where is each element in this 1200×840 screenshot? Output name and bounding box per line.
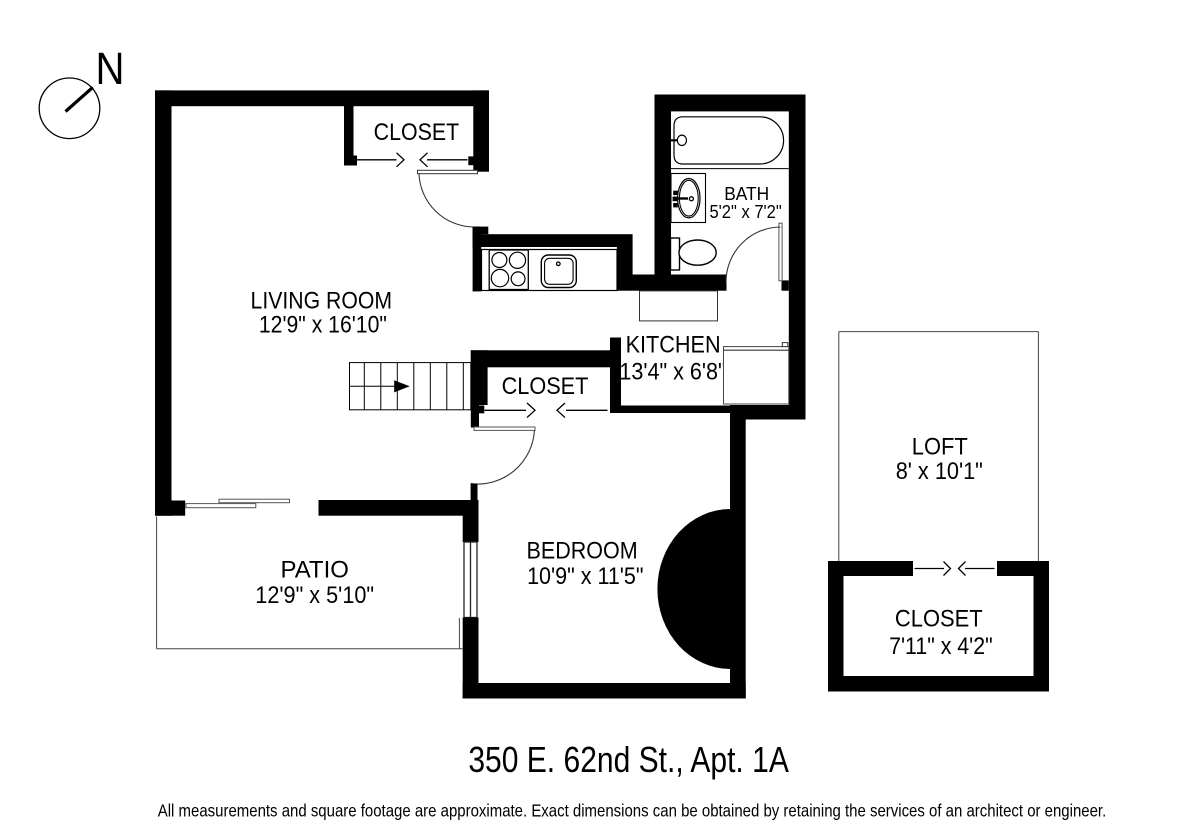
svg-text:12'9" x 5'10": 12'9" x 5'10" (255, 582, 374, 609)
svg-text:BEDROOM: BEDROOM (527, 537, 638, 564)
svg-text:350 E. 62nd St., Apt. 1A: 350 E. 62nd St., Apt. 1A (468, 739, 789, 780)
svg-text:10'9" x 11'5": 10'9" x 11'5" (527, 563, 643, 590)
svg-text:BATH: BATH (724, 184, 769, 204)
svg-text:13'4" x 6'8": 13'4" x 6'8" (619, 359, 725, 386)
svg-text:CLOSET: CLOSET (895, 606, 983, 633)
svg-text:N: N (96, 43, 125, 94)
svg-text:7'11" x 4'2": 7'11" x 4'2" (889, 633, 993, 660)
svg-text:All measurements and square fo: All measurements and square footage are … (158, 801, 1107, 821)
svg-text:CLOSET: CLOSET (502, 373, 589, 400)
svg-text:5'2" x 7'2": 5'2" x 7'2" (709, 202, 781, 222)
svg-text:PATIO: PATIO (281, 556, 349, 583)
svg-text:8' x 10'1": 8' x 10'1" (896, 458, 983, 485)
svg-text:KITCHEN: KITCHEN (626, 332, 721, 359)
svg-text:LOFT: LOFT (912, 434, 968, 461)
svg-text:CLOSET: CLOSET (374, 119, 460, 146)
svg-text:12'9" x 16'10": 12'9" x 16'10" (259, 312, 387, 339)
